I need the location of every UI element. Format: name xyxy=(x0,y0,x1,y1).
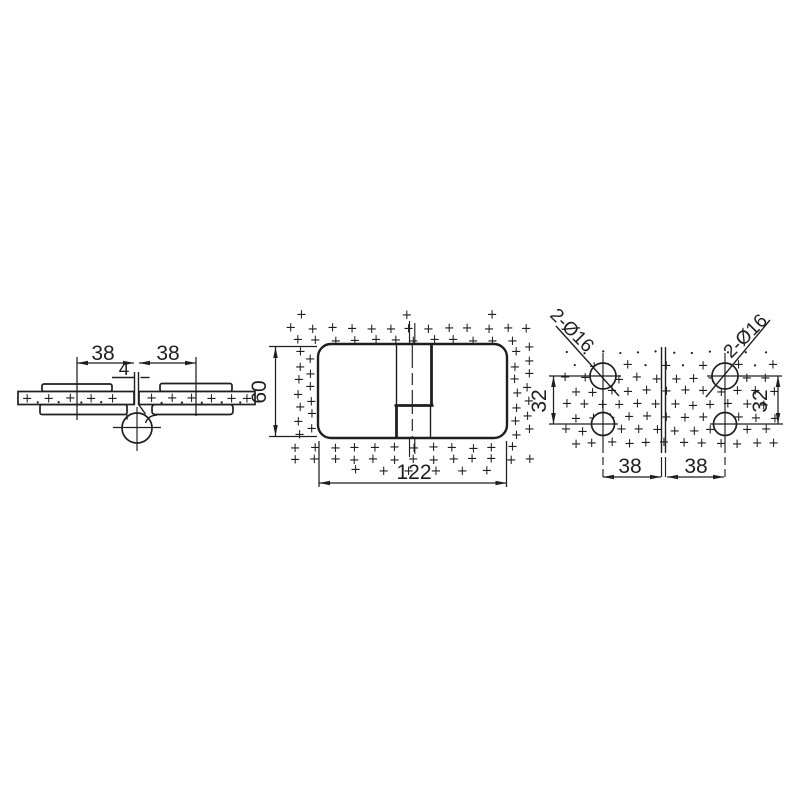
dim-text-32-right: 32 xyxy=(749,389,772,412)
arrowhead xyxy=(185,361,196,366)
glass-texture-mark: + xyxy=(696,436,707,451)
glass-texture-mark: + xyxy=(330,452,341,467)
glass-texture-dot xyxy=(654,350,656,352)
glass-texture-dot xyxy=(239,401,241,403)
glass-texture-mark: + xyxy=(294,427,305,442)
glass-texture-mark: + xyxy=(580,370,591,385)
glass-texture-mark: + xyxy=(467,451,478,466)
dim-text-38-left: 38 xyxy=(91,342,114,365)
glass-texture-dot xyxy=(161,402,163,404)
glass-texture-dot xyxy=(58,401,60,403)
glass-texture-mark: + xyxy=(146,391,157,406)
drawing-canvas: +++++++++++ 38 38 4 ++++++++++++++++++++… xyxy=(0,0,800,800)
glass-texture-mark: + xyxy=(107,391,118,406)
glass-texture-mark: + xyxy=(524,367,535,382)
glass-texture-mark: + xyxy=(305,380,316,395)
glass-texture-dot xyxy=(709,351,711,353)
glass-texture-mark: + xyxy=(86,392,97,407)
arrowhead xyxy=(77,361,88,366)
glass-texture-mark: + xyxy=(511,344,522,359)
glass-texture-dot xyxy=(602,350,604,352)
glass-texture-mark: + xyxy=(658,435,669,450)
glass-texture-mark: + xyxy=(226,391,237,406)
arrowhead xyxy=(273,347,278,358)
glass-texture-mark: + xyxy=(524,452,535,467)
glass-texture-mark: + xyxy=(206,392,217,407)
glass-texture-mark: + xyxy=(560,370,571,385)
arrowhead xyxy=(776,376,781,387)
glass-texture-mark: + xyxy=(293,373,304,388)
glass-texture-mark: + xyxy=(295,400,306,415)
hole-preparation-view: ++++++++++++++++++++++++++++++++++++++++… xyxy=(528,305,783,478)
arrowhead xyxy=(319,481,330,486)
dim-text-38-right: 38 xyxy=(684,455,707,478)
glass-texture-dot xyxy=(637,351,639,353)
glass-texture-mark: + xyxy=(571,437,582,452)
glass-texture-mark: + xyxy=(752,436,763,451)
glass-texture-mark: + xyxy=(296,307,307,322)
glass-texture-mark: + xyxy=(680,383,691,398)
dim-text-38-left: 38 xyxy=(618,455,641,478)
glass-texture-dot xyxy=(673,352,675,354)
glass-texture-dot xyxy=(100,401,102,403)
arrowhead xyxy=(139,361,150,366)
arrowhead xyxy=(650,475,661,480)
glass-texture-mark: + xyxy=(167,391,178,406)
arrowhead xyxy=(273,425,278,436)
hinge-technical-drawing: +++++++++++ 38 38 4 ++++++++++++++++++++… xyxy=(0,0,800,800)
glass-texture-mark: + xyxy=(624,437,635,452)
glass-texture-mark: + xyxy=(607,435,618,450)
glass-texture-mark: + xyxy=(305,352,316,367)
glass-texture-mark: + xyxy=(43,391,54,406)
arrowhead xyxy=(496,481,507,486)
glass-texture-mark: + xyxy=(510,414,521,429)
glass-texture-mark: + xyxy=(65,391,76,406)
glass-texture-mark: + xyxy=(350,463,361,478)
glass-texture-dot xyxy=(181,401,183,403)
glass-texture-dot xyxy=(619,352,621,354)
glass-texture-mark: + xyxy=(309,452,320,467)
dim-text-32-left: 32 xyxy=(528,389,551,412)
dim-text-122: 122 xyxy=(396,461,431,484)
glass-texture-mark: + xyxy=(506,453,517,468)
glass-texture-mark: + xyxy=(306,421,317,436)
glass-texture-mark: + xyxy=(22,392,33,407)
glass-texture-mark: + xyxy=(307,407,318,422)
glass-texture-mark: + xyxy=(768,436,779,451)
glass-texture-dot xyxy=(754,364,756,366)
glass-texture-dot xyxy=(765,351,767,353)
holes-label-right: 2-Ø16 xyxy=(720,310,772,362)
front-view: ++++++++++++++++++++++++++++++++++++++++… xyxy=(248,307,535,487)
glass-texture-dot xyxy=(566,351,568,353)
arrowhead xyxy=(667,475,678,480)
glass-texture-dot xyxy=(574,364,576,366)
glass-texture-dot xyxy=(682,364,684,366)
glass-texture-mark: + xyxy=(521,321,532,336)
glass-texture-mark: + xyxy=(430,464,441,479)
glass-texture-dot xyxy=(644,364,646,366)
glass-texture-mark: + xyxy=(524,340,535,355)
glass-texture-mark: + xyxy=(487,308,498,323)
glass-texture-mark: + xyxy=(481,463,492,478)
glass-texture-mark: + xyxy=(457,464,468,479)
glass-texture-mark: + xyxy=(186,391,197,406)
glass-texture-mark: + xyxy=(290,452,301,467)
glass-texture-dot xyxy=(37,401,39,403)
arrowhead xyxy=(603,475,614,480)
glass-texture-mark: + xyxy=(679,436,690,451)
side-section-view: +++++++++++ 38 38 4 xyxy=(18,342,255,451)
glass-texture-mark: + xyxy=(722,396,733,411)
dim-text-38-right: 38 xyxy=(156,342,179,365)
holes-label-left: 2-Ø16 xyxy=(545,305,597,357)
dim-text-60: 60 xyxy=(248,380,271,403)
glass-texture-mark: + xyxy=(511,428,522,443)
glass-texture-mark: + xyxy=(579,397,590,412)
glass-texture-dot xyxy=(221,401,223,403)
glass-texture-dot xyxy=(80,401,82,403)
glass-texture-group: ++++++++++++++++++++++++++++++++++++++++… xyxy=(560,350,781,452)
glass-texture-mark: + xyxy=(640,436,651,451)
arrowhead xyxy=(551,413,556,424)
glass-texture-mark: + xyxy=(524,422,535,437)
glass-texture-dot xyxy=(201,402,203,404)
arrowhead xyxy=(713,475,724,480)
glass-texture-mark: + xyxy=(732,437,743,452)
glass-texture-mark: + xyxy=(561,396,572,411)
glass-texture-mark: + xyxy=(378,464,389,479)
glass-texture-mark: + xyxy=(368,452,379,467)
glass-texture-mark: + xyxy=(586,436,597,451)
arrowhead xyxy=(551,376,556,387)
glass-texture-dot xyxy=(691,352,693,354)
